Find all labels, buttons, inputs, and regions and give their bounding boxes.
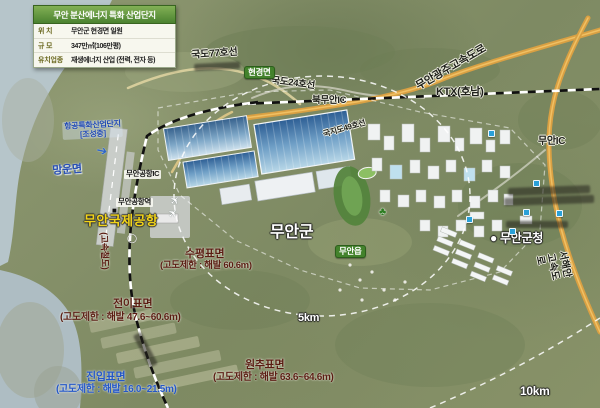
ic-bukmuan: 북무안IC xyxy=(312,96,346,107)
info-label: 규 모 xyxy=(38,41,71,51)
info-label: 유치업종 xyxy=(38,55,71,65)
surface-horizontal-sub: (고도제한 : 해발 60.6m) xyxy=(160,261,252,272)
hsr-vertical-label: (고속철도) xyxy=(99,232,111,270)
airport-name: 무안국제공항 xyxy=(84,214,158,229)
surface-conical-sub: (고도제한 : 해발 63.6~64.6m) xyxy=(213,372,334,384)
station-muan-airport: 무안공항역 xyxy=(116,198,153,207)
ic-muan-airport: 무안공항IC xyxy=(124,170,161,179)
surface-transition-title: 전이표면 xyxy=(113,298,152,311)
info-box: 무안 분산에너지 특화 산업단지 위 치 무안군 현경면 일원 규 모 347만… xyxy=(33,5,176,68)
poi-marker-icon xyxy=(509,228,516,235)
info-value: 347만㎡(106만평) xyxy=(71,41,172,51)
range-5km: 5km xyxy=(298,312,319,325)
poi-marker-icon xyxy=(488,130,495,137)
surface-conical-title: 원추표면 xyxy=(245,359,284,372)
surface-horizontal-title: 수평표면 xyxy=(185,248,224,261)
aviation-complex-label: 항공특화산업단지 [조성중] xyxy=(62,119,123,141)
info-label: 위 치 xyxy=(38,26,71,36)
gov-muan: ● 무안군청 xyxy=(490,232,543,246)
town-buildings xyxy=(338,263,406,301)
ktx-line-label: KTX(호남) xyxy=(436,86,483,99)
surface-transition-sub: (고도제한 : 해발 47.6~60.6m) xyxy=(60,312,181,324)
poi-marker-icon xyxy=(466,216,473,223)
info-value: 무안군 현경면 일원 xyxy=(71,26,172,36)
badge-muaneup: 무안읍 xyxy=(335,245,366,258)
poi-marker-icon xyxy=(523,209,530,216)
info-row-industry: 유치업종 재생에너지 산업 (전력, 전자 등) xyxy=(34,52,175,67)
info-box-body: 위 치 무안군 현경면 일원 규 모 347만㎡(106만평) 유치업종 재생에… xyxy=(33,24,176,68)
district-muan: 무안군 xyxy=(270,224,313,242)
muan-site-map: 무안 분산에너지 특화 산업단지 위 치 무안군 현경면 일원 규 모 347만… xyxy=(0,0,600,408)
surface-approach-sub: (고도제한 : 해발 16.0~21.5m) xyxy=(56,384,177,396)
tree-icon: ♣ xyxy=(379,206,386,219)
heliport-mark-icon: ◯ xyxy=(127,233,137,243)
poi-marker-icon xyxy=(556,210,563,217)
expwy-seohaean: 서해안고속도로 xyxy=(533,250,574,289)
poi-marker-icon xyxy=(533,180,540,187)
info-box-title: 무안 분산에너지 특화 산업단지 xyxy=(33,5,176,24)
town-mangun: 망운면 xyxy=(52,163,82,178)
surface-approach-title: 진입표면 xyxy=(86,371,125,384)
illegible-text-smudge xyxy=(506,221,568,228)
badge-hyeongyeong: 현경면 xyxy=(244,66,275,79)
ic-muan: 무안IC xyxy=(538,136,565,148)
range-10km: 10km xyxy=(520,385,550,399)
info-value: 재생에너지 산업 (전력, 전자 등) xyxy=(71,55,172,65)
info-row-location: 위 치 무안군 현경면 일원 xyxy=(34,24,175,38)
info-row-size: 규 모 347만㎡(106만평) xyxy=(34,38,175,53)
